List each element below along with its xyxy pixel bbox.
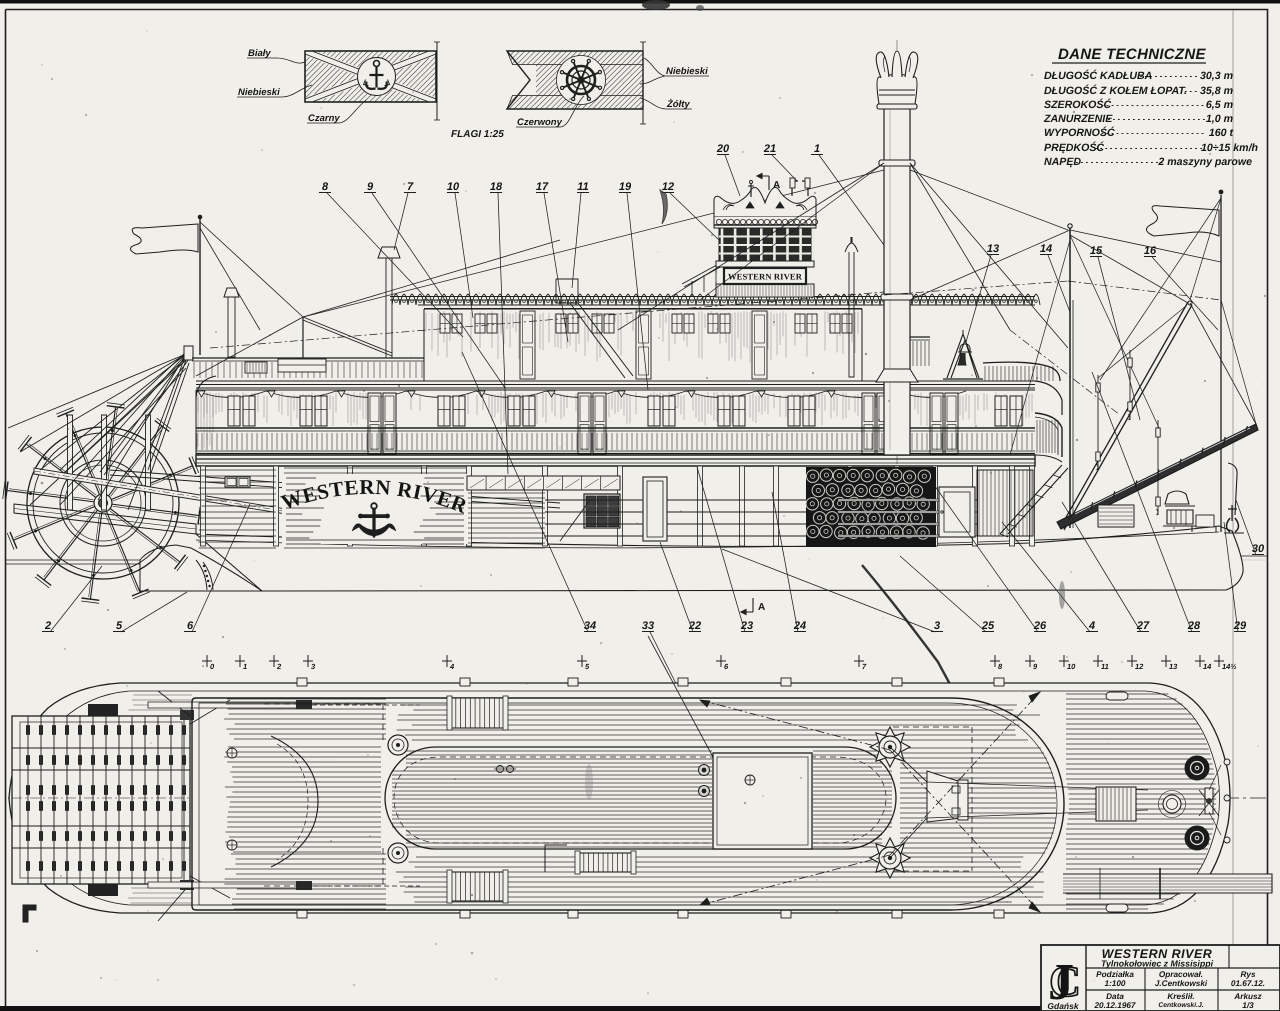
svg-text:DŁUGOŚĆ Z KOŁEM ŁOPAT.: DŁUGOŚĆ Z KOŁEM ŁOPAT.: [1044, 84, 1187, 97]
svg-text:Podziałka: Podziałka: [1096, 970, 1134, 979]
svg-text:11: 11: [1101, 662, 1109, 671]
svg-text:ZANURZENIE: ZANURZENIE: [1043, 113, 1113, 125]
svg-text:13: 13: [1169, 662, 1178, 671]
svg-text:Opracował.: Opracował.: [1159, 970, 1203, 979]
svg-text:Czarny: Czarny: [308, 113, 340, 124]
svg-text:Data: Data: [1106, 992, 1124, 1001]
svg-text:20: 20: [716, 143, 730, 155]
svg-text:16: 16: [1144, 245, 1157, 257]
svg-text:Kreślił.: Kreślił.: [1167, 992, 1194, 1001]
svg-text:28: 28: [1187, 620, 1201, 632]
svg-text:NAPĘD: NAPĘD: [1044, 156, 1081, 168]
svg-text:Niebieski: Niebieski: [238, 87, 280, 98]
svg-text:1: 1: [814, 143, 820, 155]
svg-text:19: 19: [619, 181, 632, 193]
svg-text:A: A: [758, 602, 765, 613]
svg-text:34: 34: [584, 620, 596, 632]
svg-text:14½: 14½: [1222, 662, 1237, 671]
svg-text:01.67.12.: 01.67.12.: [1231, 979, 1265, 988]
svg-text:Czerwony: Czerwony: [517, 117, 563, 128]
svg-text:Niebieski: Niebieski: [666, 66, 708, 77]
svg-text:33: 33: [642, 620, 654, 632]
svg-text:Żółty: Żółty: [666, 98, 690, 110]
svg-text:1: 1: [243, 662, 247, 671]
svg-text:8: 8: [322, 181, 329, 193]
svg-text:21: 21: [763, 143, 776, 155]
svg-text:DŁUGOŚĆ KADŁUBA: DŁUGOŚĆ KADŁUBA: [1044, 69, 1152, 82]
svg-text:11: 11: [577, 181, 588, 193]
svg-text:12: 12: [1135, 662, 1144, 671]
svg-text:2: 2: [44, 620, 51, 632]
svg-text:14: 14: [1040, 243, 1052, 255]
svg-text:26: 26: [1033, 620, 1047, 632]
svg-text:20.12.1967: 20.12.1967: [1094, 1001, 1136, 1010]
svg-text:6,5 m: 6,5 m: [1206, 99, 1233, 111]
svg-text:3: 3: [934, 620, 940, 632]
svg-text:5: 5: [116, 620, 123, 632]
svg-text:10÷15 km/h: 10÷15 km/h: [1201, 142, 1259, 154]
svg-text:9: 9: [367, 181, 374, 193]
svg-text:22: 22: [688, 620, 701, 632]
svg-text:1:100: 1:100: [1105, 979, 1126, 988]
svg-text:27: 27: [1136, 620, 1150, 632]
svg-text:1/3: 1/3: [1242, 1001, 1254, 1010]
svg-text:Arkusz: Arkusz: [1233, 992, 1262, 1001]
svg-text:Tylnokołowiec z Missisippi: Tylnokołowiec z Missisippi: [1101, 959, 1214, 969]
svg-text:WYPORNOŚĆ: WYPORNOŚĆ: [1044, 126, 1115, 139]
svg-text:25: 25: [981, 620, 995, 632]
svg-text:SZEROKOŚĆ: SZEROKOŚĆ: [1044, 98, 1111, 111]
svg-text:24: 24: [793, 620, 806, 632]
svg-text:12: 12: [662, 181, 674, 193]
svg-text:Rys: Rys: [1240, 970, 1255, 979]
svg-text:14: 14: [1203, 662, 1212, 671]
svg-text:2: 2: [276, 662, 282, 671]
svg-text:WESTERN RIVER: WESTERN RIVER: [728, 272, 803, 282]
svg-text:2 maszyny parowe: 2 maszyny parowe: [1157, 156, 1252, 168]
svg-text:PRĘDKOŚĆ: PRĘDKOŚĆ: [1044, 141, 1104, 154]
svg-text:35,8 m: 35,8 m: [1200, 85, 1233, 97]
svg-text:160 t: 160 t: [1209, 127, 1234, 139]
svg-text:13: 13: [987, 243, 999, 255]
svg-text:1,0 m: 1,0 m: [1206, 113, 1233, 125]
svg-text:FLAGI 1:25: FLAGI 1:25: [451, 129, 504, 140]
svg-text:J.Centkowski: J.Centkowski: [1155, 979, 1208, 988]
svg-text:29: 29: [1233, 620, 1247, 632]
svg-text:30,3 m: 30,3 m: [1200, 70, 1233, 82]
svg-text:17: 17: [536, 181, 549, 193]
svg-text:Centkowski.J.: Centkowski.J.: [1158, 1002, 1203, 1009]
svg-text:Biały: Biały: [248, 48, 271, 59]
svg-text:7: 7: [407, 181, 414, 193]
svg-text:18: 18: [490, 181, 503, 193]
svg-text:10: 10: [447, 181, 460, 193]
svg-text:A: A: [773, 180, 780, 191]
svg-text:DANE TECHNICZNE: DANE TECHNICZNE: [1058, 46, 1207, 63]
svg-text:Gdańsk: Gdańsk: [1047, 1001, 1079, 1011]
svg-text:10: 10: [1067, 662, 1076, 671]
svg-text:15: 15: [1090, 245, 1103, 257]
svg-text:4: 4: [449, 662, 455, 671]
